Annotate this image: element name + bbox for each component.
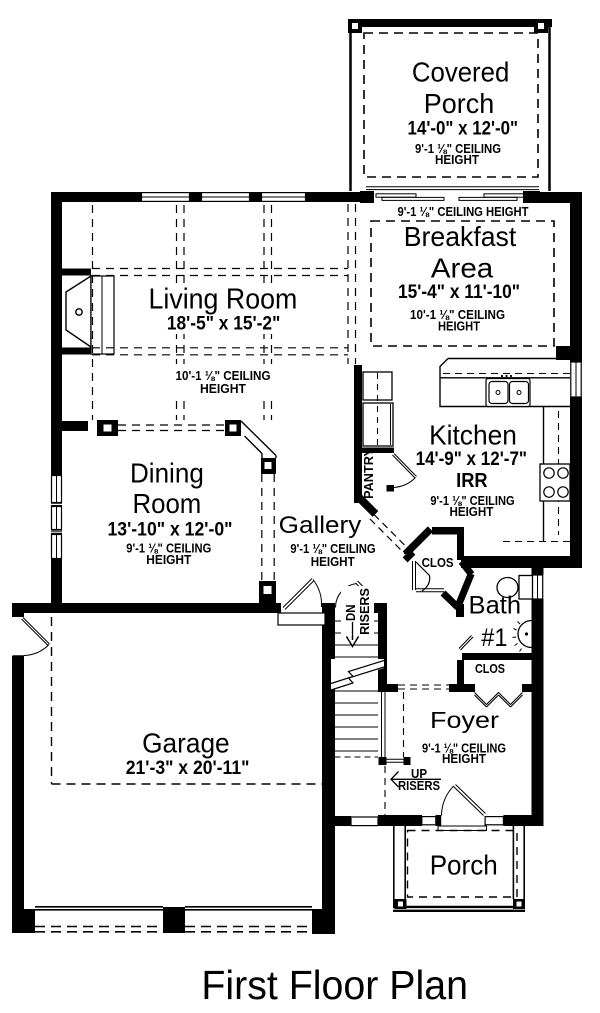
svg-text:13'-10" x 12'-0": 13'-10" x 12'-0" xyxy=(108,520,233,541)
svg-text:HEIGHT: HEIGHT xyxy=(200,382,246,396)
svg-text:RISERS: RISERS xyxy=(398,779,440,793)
svg-text:Gallery: Gallery xyxy=(279,512,362,539)
svg-text:#1: #1 xyxy=(481,624,507,652)
svg-text:IRR: IRR xyxy=(456,470,488,492)
svg-text:HEIGHT: HEIGHT xyxy=(438,320,480,334)
svg-text:HEIGHT: HEIGHT xyxy=(146,553,191,567)
svg-text:Living Room: Living Room xyxy=(149,283,298,315)
svg-text:DN: DN xyxy=(344,604,358,621)
svg-text:9'-1 ⅛" CEILING HEIGHT: 9'-1 ⅛" CEILING HEIGHT xyxy=(398,205,529,219)
svg-text:18'-5" x 15'-2": 18'-5" x 15'-2" xyxy=(167,314,280,335)
svg-text:Bath: Bath xyxy=(469,592,522,620)
svg-text:CLOS: CLOS xyxy=(422,556,454,570)
svg-text:14'-0" x 12'-0": 14'-0" x 12'-0" xyxy=(408,119,519,140)
svg-text:14'-9" x 12'-7": 14'-9" x 12'-7" xyxy=(416,449,527,470)
svg-text:Porch: Porch xyxy=(430,849,498,880)
svg-text:Kitchen: Kitchen xyxy=(429,419,517,450)
svg-text:HEIGHT: HEIGHT xyxy=(449,505,493,519)
svg-text:First Floor Plan: First Floor Plan xyxy=(201,962,468,1008)
svg-text:15'-4" x 11'-10": 15'-4" x 11'-10" xyxy=(398,282,520,303)
svg-text:Covered: Covered xyxy=(412,56,510,87)
svg-text:Porch: Porch xyxy=(424,88,494,119)
svg-text:CLOS: CLOS xyxy=(475,662,505,676)
svg-text:HEIGHT: HEIGHT xyxy=(435,153,479,167)
svg-text:PANTRY: PANTRY xyxy=(362,447,376,498)
svg-text:RISERS: RISERS xyxy=(358,588,372,635)
svg-text:HEIGHT: HEIGHT xyxy=(311,555,355,569)
svg-text:Area: Area xyxy=(431,253,494,284)
svg-text:21'-3" x 20'-11": 21'-3" x 20'-11" xyxy=(126,758,250,779)
svg-text:HEIGHT: HEIGHT xyxy=(442,752,486,766)
svg-text:Dining: Dining xyxy=(130,458,204,489)
svg-text:Foyer: Foyer xyxy=(430,707,499,733)
svg-text:Room: Room xyxy=(133,488,202,519)
svg-text:9'-1 ⅛" CEILING: 9'-1 ⅛" CEILING xyxy=(290,542,375,556)
svg-text:Breakfast: Breakfast xyxy=(404,221,517,252)
svg-text:Garage: Garage xyxy=(142,728,230,759)
svg-text:10'-1 ⅛" CEILING: 10'-1 ⅛" CEILING xyxy=(176,369,271,383)
